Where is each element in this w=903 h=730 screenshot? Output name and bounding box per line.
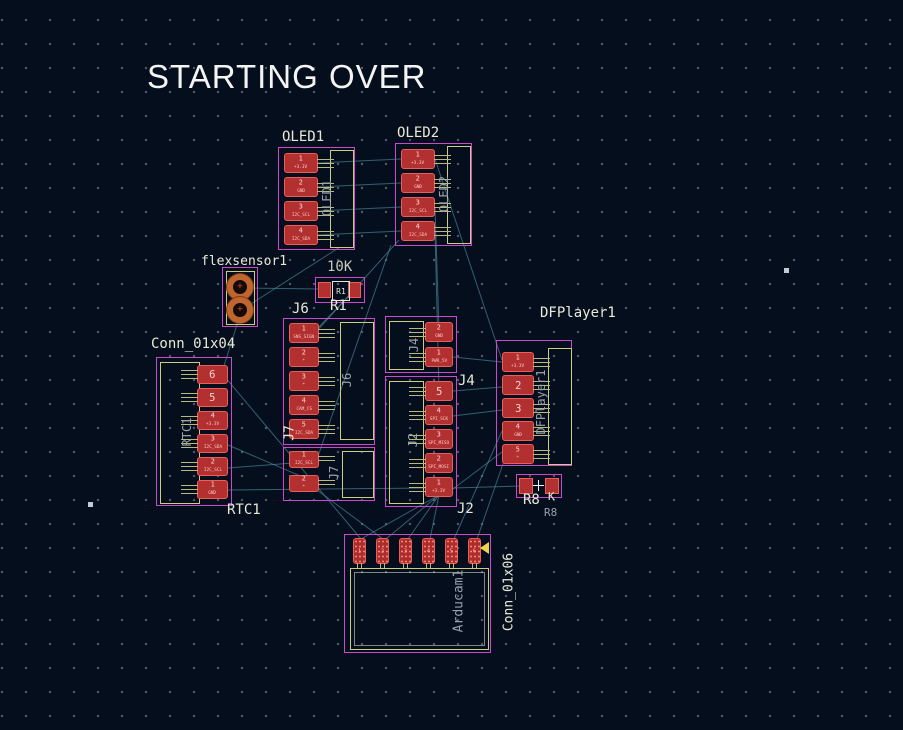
pad-net-name: SPI_SCK xyxy=(430,417,448,421)
pcb-editor-canvas[interactable]: STARTING OVER 1+3.3V2GND3I2C_SCL4I2C_SDA… xyxy=(0,0,903,730)
oled2-pads: 1+3.3V2GND3I2C_SCL4I2C_SDA xyxy=(401,149,435,241)
pad-number: 1 xyxy=(437,349,441,356)
pad-number: 2 xyxy=(416,175,420,182)
pad-1[interactable]: 1+3.3V xyxy=(502,352,534,372)
pad-2[interactable]: 2* xyxy=(289,475,319,492)
pad-net-name: +3.3V xyxy=(511,364,524,368)
dfplayer-pads: 1+3.3V234GND5* xyxy=(502,352,534,464)
pad-number: 6 xyxy=(209,369,215,379)
pad-net-name: I2C_SCL xyxy=(409,209,427,213)
pin1-triangle-marker xyxy=(480,542,489,554)
pad-2[interactable]: 2* xyxy=(289,347,319,367)
r8-anchor-cross xyxy=(533,480,544,491)
footprint-oled2[interactable]: 1+3.3V2GND3I2C_SCL4I2C_SDA OLED2 OLED2 xyxy=(395,143,472,246)
pad-net-name: I2C_SCL xyxy=(295,461,313,465)
pad-2[interactable]: 2 xyxy=(376,538,389,564)
pad-number: 2 xyxy=(437,324,441,331)
flexsensor-pad-2[interactable] xyxy=(227,297,253,323)
pad-2[interactable]: 2GND xyxy=(425,322,453,342)
pad-net-name: I2C_SDA xyxy=(409,233,427,237)
pad-3[interactable]: 3* xyxy=(289,371,319,391)
pad-net-name: SNS_SIGN xyxy=(294,335,315,339)
oled1-pads: 1+3.3V2GND3I2C_SCL4I2C_SDA xyxy=(284,153,318,245)
pad-4[interactable]: 4SPI_SCK xyxy=(425,405,453,425)
j6-fab-ref: J6 xyxy=(340,373,354,387)
pad-1[interactable]: 1+3.3V xyxy=(425,477,453,497)
pad-net-name: I2C_SDA xyxy=(203,445,221,449)
flexsensor-label[interactable]: flexsensor1 xyxy=(201,254,287,269)
pad-2[interactable]: 2GND xyxy=(401,173,435,193)
pad-number: 5 xyxy=(302,421,306,428)
pcb-text-title[interactable]: STARTING OVER xyxy=(147,58,426,96)
pad-net-name: I2C_SCL xyxy=(203,468,221,472)
rtc-fab-ref: RTC1 xyxy=(180,418,194,447)
pad-1[interactable]: 1I2C_SCL xyxy=(289,451,319,468)
pad-number: 2 xyxy=(437,455,441,462)
dfplayer-courtyard xyxy=(548,348,572,465)
pad-net-name: * xyxy=(303,485,306,489)
r1-value-label[interactable]: 10K xyxy=(327,259,352,275)
pad-5[interactable]: 5 xyxy=(425,381,453,401)
dfplayer-label[interactable]: DFPlayer1 xyxy=(540,305,616,321)
r8-value-tail: K xyxy=(548,490,555,503)
grid-origin-marker xyxy=(88,502,93,507)
pad-4[interactable]: 4 xyxy=(422,538,435,564)
pad-number: 4 xyxy=(299,227,303,234)
pad-number: 1 xyxy=(416,151,420,158)
pad-number: 3 xyxy=(515,403,521,413)
pad-3[interactable]: 3I2C_SCL xyxy=(401,197,435,217)
oled2-fab-ref: OLED2 xyxy=(437,176,451,212)
pad-number: 3 xyxy=(210,436,214,443)
pad-number: 1 xyxy=(437,479,441,486)
dfplayer-fab-ref: DFPlayer1 xyxy=(534,369,548,434)
pad-3[interactable]: 3SPI_MISO xyxy=(425,429,453,449)
arducam-fab-ref: Arducam1 xyxy=(452,570,467,633)
j4-label[interactable]: J4 xyxy=(458,373,475,389)
oled1-fab-ref: OLED1 xyxy=(320,180,334,216)
arducam-pads: 123456 xyxy=(353,538,481,564)
pad-number: 4 xyxy=(437,407,441,414)
footprint-flexsensor1[interactable]: flexsensor1 xyxy=(222,267,258,327)
pad-number: 1 xyxy=(302,325,306,332)
pad-net-name: I2C_SDA xyxy=(292,237,310,241)
pad-number: 4 xyxy=(416,223,420,230)
j7-fab-ref: J7 xyxy=(327,466,341,480)
oled2-label[interactable]: OLED2 xyxy=(397,125,439,141)
pad-net-name: I2C_SCL xyxy=(292,213,310,217)
pad-number: 4 xyxy=(516,423,520,430)
pad-4[interactable]: 4+3.3V xyxy=(197,411,228,430)
rtc-ref-label[interactable]: RTC1 xyxy=(227,502,261,518)
pad-net-name: SPI_MOSI xyxy=(429,465,450,469)
rtc-footprint-label[interactable]: Conn_01x04 xyxy=(151,336,235,352)
pad-4[interactable]: 4GND xyxy=(502,421,534,441)
footprint-j7[interactable]: 1I2C_SCL2* J7 J7 xyxy=(283,447,375,501)
pad-4[interactable]: 4I2C_SDA xyxy=(284,225,318,245)
pad-number: 6 xyxy=(473,548,476,554)
j2-label[interactable]: J2 xyxy=(457,501,474,517)
pad-net-name: +3.3V xyxy=(294,165,307,169)
pad-3[interactable]: 3 xyxy=(399,538,412,564)
pad-number: 2 xyxy=(515,380,521,390)
pad-6[interactable]: 6 xyxy=(197,365,228,384)
footprint-j4[interactable]: 2GND1PWR_5V J4 J4 xyxy=(385,316,457,373)
pad-3[interactable]: 3I2C_SDA xyxy=(197,434,228,453)
j7-pads: 1I2C_SCL2* xyxy=(289,451,319,492)
pad-number: 2 xyxy=(381,548,384,554)
pad-number: 3 xyxy=(437,431,441,438)
r1-pad-1[interactable] xyxy=(318,282,331,298)
pad-1[interactable]: 1GND xyxy=(197,480,228,499)
pad-2[interactable]: 2I2C_SCL xyxy=(197,457,228,476)
pad-net-name: I2C_SDA xyxy=(295,431,313,435)
pad-2[interactable]: 2 xyxy=(502,375,534,395)
j4-fab-ref: J4 xyxy=(407,338,421,352)
footprint-oled1[interactable]: 1+3.3V2GND3I2C_SCL4I2C_SDA OLED1 OLED1 xyxy=(278,147,355,250)
pad-number: 1 xyxy=(210,482,214,489)
pad-net-name: * xyxy=(517,456,520,460)
pad-net-name: CAM_CS xyxy=(296,407,312,411)
pad-4[interactable]: 4I2C_SDA xyxy=(401,221,435,241)
pad-1[interactable]: 1SNS_SIGN xyxy=(289,323,319,343)
pad-net-name: +3.3V xyxy=(432,489,445,493)
pad-net-name: +3.3V xyxy=(411,161,424,165)
pad-1[interactable]: 1PWR_5V xyxy=(425,347,453,367)
pad-5[interactable]: 5 xyxy=(445,538,458,564)
r1-ref-label[interactable]: R1 xyxy=(330,298,347,314)
pad-2[interactable]: 2SPI_MOSI xyxy=(425,453,453,473)
pad-number: 2 xyxy=(302,476,306,483)
j2-fab-ref: J2 xyxy=(406,433,420,447)
pad-net-name: GND xyxy=(209,491,217,495)
pad-number: 4 xyxy=(210,413,214,420)
pad-4[interactable]: 4CAM_CS xyxy=(289,395,319,415)
pad-2[interactable]: 2GND xyxy=(284,177,318,197)
pad-1[interactable]: 1+3.3V xyxy=(284,153,318,173)
pad-3[interactable]: 3 xyxy=(502,398,534,418)
footprint-dfplayer1[interactable]: 1+3.3V234GND5* DFPlayer1 DFPlayer1 xyxy=(496,340,572,466)
j7-courtyard xyxy=(342,451,374,498)
footprint-rtc1[interactable]: 654+3.3V3I2C_SDA2I2C_SCL1GND RTC1 Conn_0… xyxy=(156,357,232,506)
pad-number: 1 xyxy=(358,548,361,554)
pad-net-name: * xyxy=(303,359,306,363)
aux-origin-marker xyxy=(784,268,789,273)
footprint-r1[interactable]: R1 10K R1 xyxy=(315,277,365,303)
pad-net-name: PWR_5V xyxy=(431,359,447,363)
pad-net-name: GND xyxy=(514,433,522,437)
pad-number: 2 xyxy=(210,459,214,466)
pad-number: 2 xyxy=(302,349,306,356)
pad-net-name: GND xyxy=(414,185,422,189)
pad-number: 1 xyxy=(516,354,520,361)
footprint-r8[interactable]: R8 K R8 xyxy=(516,474,562,498)
footprint-arducam1[interactable]: 123456 Arducam1 Conn_01x06 xyxy=(344,534,491,653)
pad-5[interactable]: 5* xyxy=(502,444,534,464)
pad-number: 3 xyxy=(416,199,420,206)
pad-number: 3 xyxy=(302,373,306,380)
j7-silk-ref[interactable]: J7 xyxy=(283,425,298,441)
pad-net-name: * xyxy=(303,383,306,387)
pad-1[interactable]: 1+3.3V xyxy=(401,149,435,169)
pad-number: 1 xyxy=(302,452,306,459)
rtc-pads: 654+3.3V3I2C_SDA2I2C_SCL1GND xyxy=(197,365,228,499)
j6-pads: 1SNS_SIGN2*3*4CAM_CS5I2C_SDA xyxy=(289,323,319,439)
pad-number: 5 xyxy=(450,548,453,554)
pad-3[interactable]: 3I2C_SCL xyxy=(284,201,318,221)
pad-net-name: GND xyxy=(435,334,443,338)
oled1-label[interactable]: OLED1 xyxy=(282,129,324,145)
pad-number: 2 xyxy=(299,179,303,186)
pad-number: 3 xyxy=(404,548,407,554)
pad-5[interactable]: 5 xyxy=(197,388,228,407)
pad-number: 5 xyxy=(436,386,442,396)
j2-pads: 54SPI_SCK3SPI_MISO2SPI_MOSI1+3.3V xyxy=(425,381,453,497)
arducam-side-label[interactable]: Conn_01x06 xyxy=(502,553,517,631)
pad-number: 5 xyxy=(516,446,520,453)
pad-net-name: +3.3V xyxy=(206,422,219,426)
pad-number: 1 xyxy=(299,155,303,162)
pad-1[interactable]: 1 xyxy=(353,538,366,564)
pad-number: 4 xyxy=(427,548,430,554)
r8-ref-label[interactable]: R8 xyxy=(523,492,540,508)
pad-number: 4 xyxy=(302,397,306,404)
footprint-j2[interactable]: 54SPI_SCK3SPI_MISO2SPI_MOSI1+3.3V J2 J2 xyxy=(385,376,457,507)
pad-number: 3 xyxy=(299,203,303,210)
pad-net-name: GND xyxy=(297,189,305,193)
j6-label[interactable]: J6 xyxy=(292,301,309,317)
j4-pads: 2GND1PWR_5V xyxy=(425,322,453,367)
pad-net-name: SPI_MISO xyxy=(429,441,450,445)
r8-fab-ref: R8 xyxy=(544,506,557,519)
pad-number: 5 xyxy=(209,392,215,402)
